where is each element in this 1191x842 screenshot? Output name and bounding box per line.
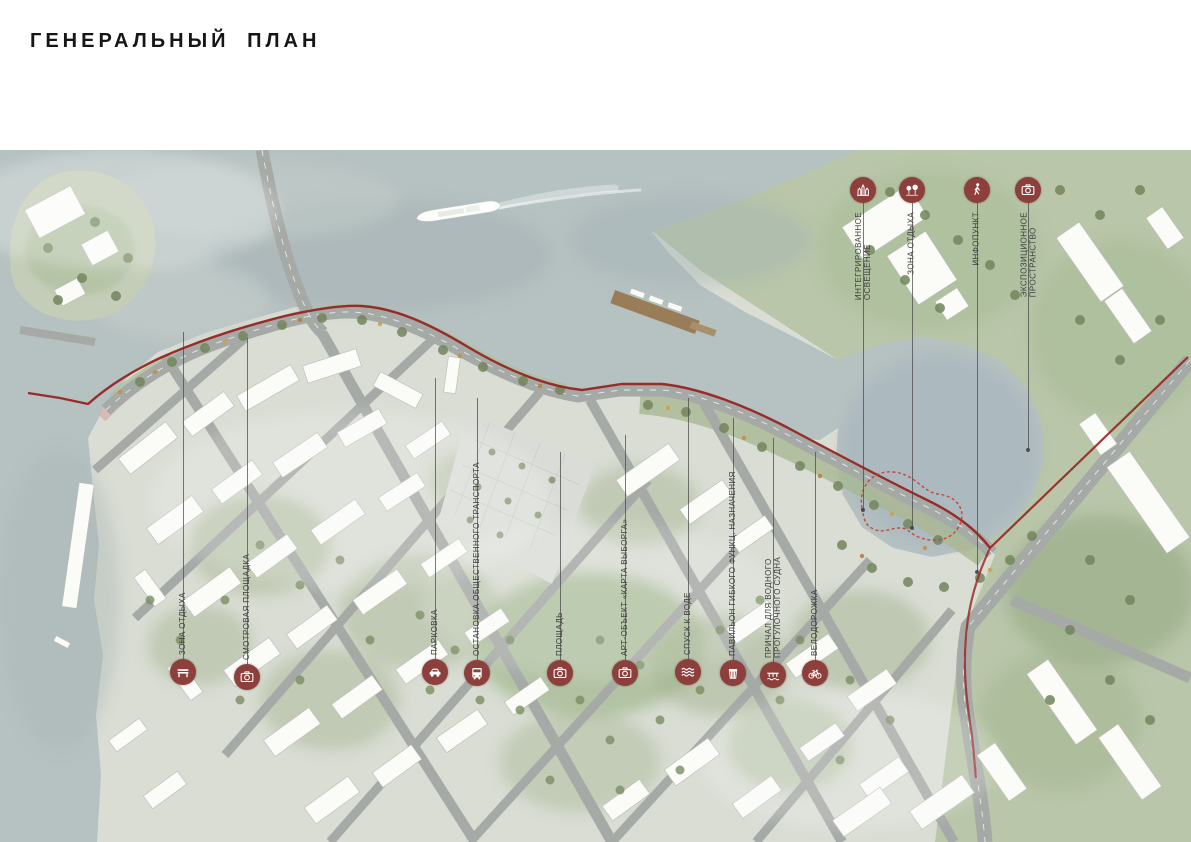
map-artwork xyxy=(0,150,1191,842)
marker-label: СПУСК К ВОДЕ xyxy=(683,592,692,655)
car-icon xyxy=(422,659,448,685)
marker-label: АРТ-ОБЪЕКТ «КАРТА ВЫБОРГА» xyxy=(620,519,629,656)
trees-icon xyxy=(899,177,925,203)
bus-icon xyxy=(464,660,490,686)
marker-label: СМОТРОВАЯ ПЛОЩАДКА xyxy=(242,554,251,660)
marker-label: ИНТЕГРИРОВАННОЕОСВЕЩЕНИЕ xyxy=(854,212,872,300)
camera-icon xyxy=(1015,177,1041,203)
marker-label: ПАВИЛЬОН ГИБКОГО ФУНКЦ. НАЗНАЧЕНИЯ xyxy=(728,471,737,656)
marker-label: ВЕЛОДОРОЖКА xyxy=(810,589,819,656)
castle-icon xyxy=(850,177,876,203)
marker-label: ЭКСПОЗИЦИОННОЕПРОСТРАНСТВО xyxy=(1019,212,1037,297)
kiosk-icon xyxy=(720,660,746,686)
marker-label: ПАРКОВКА xyxy=(430,609,439,655)
masterplan-sheet: ГЕНЕРАЛЬНЫЙ ПЛАН xyxy=(0,0,1191,842)
bicycle-icon xyxy=(802,660,828,686)
pier-icon xyxy=(760,662,786,688)
pedestrian-icon xyxy=(964,177,990,203)
marker-label: ПРИЧАЛ ДЛЯ ВОДНОГОПРОГУЛОЧНОГО СУДНА xyxy=(764,557,782,658)
page-title: ГЕНЕРАЛЬНЫЙ ПЛАН xyxy=(30,30,320,53)
marker-label: ЗОНА ОТДЫХА xyxy=(907,212,916,275)
marker-label: ЗОНА ОТДЫХА xyxy=(178,592,187,655)
bench-icon xyxy=(170,659,196,685)
marker-label: ОСТАНОВКА ОБЩЕСТВЕННОГО ТРАНСПОРТА xyxy=(472,462,481,656)
camera-icon xyxy=(612,660,638,686)
marker-label: ПЛОЩАДЬ xyxy=(555,612,564,656)
waves-icon xyxy=(675,659,701,685)
camera-icon xyxy=(547,660,573,686)
master-plan-map xyxy=(0,150,1191,842)
camera-icon xyxy=(234,664,260,690)
marker-label: ИНФОПУНКТ xyxy=(972,212,981,266)
